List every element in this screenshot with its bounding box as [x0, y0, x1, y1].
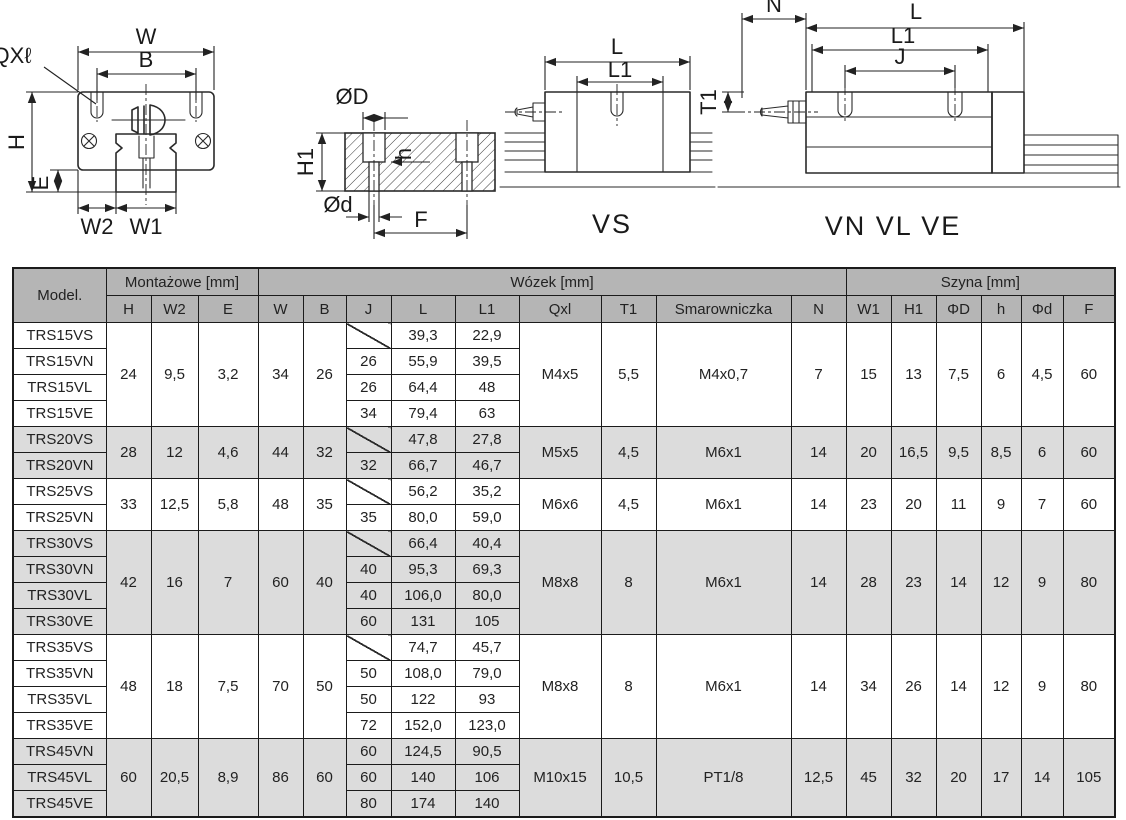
model-cell: TRS35VN [13, 661, 106, 687]
header-col: h [981, 296, 1021, 323]
table-row: TRS45VN6020,58,9866060124,590,5M10x1510,… [13, 739, 1115, 765]
j-cell: 72 [346, 713, 391, 739]
shared-cell-t1: 8 [601, 635, 656, 739]
shared-cell-h: 28 [106, 427, 151, 479]
model-cell: TRS30VL [13, 583, 106, 609]
j-cell [346, 323, 391, 349]
j-cell: 40 [346, 557, 391, 583]
shared-cell-smarowniczka: M6x1 [656, 635, 791, 739]
shared-cell-t1: 4,5 [601, 427, 656, 479]
table-row: TRS25VS3312,55,8483556,235,2M6x64,5M6x11… [13, 479, 1115, 505]
shared-cell-phid: 7,5 [936, 323, 981, 427]
header-col: W2 [151, 296, 198, 323]
shared-cell-h: 17 [981, 739, 1021, 818]
shared-cell-h: 9 [981, 479, 1021, 531]
header-col: L [391, 296, 455, 323]
model-cell: TRS30VE [13, 609, 106, 635]
header-col: H1 [891, 296, 936, 323]
shared-cell-phid: 9 [1021, 531, 1063, 635]
shared-cell-h1: 32 [891, 739, 936, 818]
l-cell: 39,3 [391, 323, 455, 349]
vn-caption: VN VL VE [825, 211, 962, 241]
l1-cell: 48 [455, 375, 519, 401]
l-cell: 66,4 [391, 531, 455, 557]
dim-label-e: E [28, 176, 53, 191]
dim-label-qxl: QXℓ [0, 43, 32, 68]
l-cell: 140 [391, 765, 455, 791]
shared-cell-e: 7 [198, 531, 258, 635]
shared-cell-qxl: M6x6 [519, 479, 601, 531]
header-col: H [106, 296, 151, 323]
shared-cell-b: 32 [303, 427, 346, 479]
technical-drawings: W B QXℓ H E [0, 0, 1126, 254]
l-cell: 56,2 [391, 479, 455, 505]
shared-cell-h: 24 [106, 323, 151, 427]
shared-cell-h: 48 [106, 635, 151, 739]
j-cell [346, 479, 391, 505]
shared-cell-f: 105 [1063, 739, 1115, 818]
l1-cell: 79,0 [455, 661, 519, 687]
l-cell: 174 [391, 791, 455, 818]
l1-cell: 63 [455, 401, 519, 427]
dim-label-w: W [136, 24, 157, 49]
dim-label-f: F [414, 207, 427, 232]
shared-cell-h1: 26 [891, 635, 936, 739]
shared-cell-w: 60 [258, 531, 303, 635]
header-col: F [1063, 296, 1115, 323]
model-cell: TRS45VN [13, 739, 106, 765]
shared-cell-n: 7 [791, 323, 846, 427]
j-cell: 80 [346, 791, 391, 818]
shared-cell-t1: 4,5 [601, 479, 656, 531]
shared-cell-qxl: M8x8 [519, 635, 601, 739]
shared-cell-e: 7,5 [198, 635, 258, 739]
dim-label-w2: W2 [81, 214, 114, 239]
header-col: W [258, 296, 303, 323]
shared-cell-f: 60 [1063, 323, 1115, 427]
shared-cell-n: 14 [791, 635, 846, 739]
shared-cell-n: 12,5 [791, 739, 846, 818]
j-cell: 32 [346, 453, 391, 479]
shared-cell-w2: 12 [151, 427, 198, 479]
shared-cell-t1: 8 [601, 531, 656, 635]
shared-cell-smarowniczka: PT1/8 [656, 739, 791, 818]
header-group: Szyna [mm] [846, 268, 1115, 296]
model-cell: TRS35VE [13, 713, 106, 739]
shared-cell-phid: 14 [936, 635, 981, 739]
shared-cell-w1: 15 [846, 323, 891, 427]
shared-cell-w1: 23 [846, 479, 891, 531]
l-cell: 106,0 [391, 583, 455, 609]
shared-cell-phid: 9,5 [936, 427, 981, 479]
shared-cell-f: 60 [1063, 479, 1115, 531]
dim-label-vn-l: L [910, 0, 922, 24]
shared-cell-n: 14 [791, 479, 846, 531]
header-col: Smarowniczka [656, 296, 791, 323]
header-col: L1 [455, 296, 519, 323]
l1-cell: 39,5 [455, 349, 519, 375]
l1-cell: 80,0 [455, 583, 519, 609]
shared-cell-phid: 20 [936, 739, 981, 818]
shared-cell-h: 12 [981, 635, 1021, 739]
model-cell: TRS25VN [13, 505, 106, 531]
shared-cell-w1: 34 [846, 635, 891, 739]
shared-cell-h1: 23 [891, 531, 936, 635]
l-cell: 131 [391, 609, 455, 635]
model-cell: TRS25VS [13, 479, 106, 505]
model-cell: TRS20VN [13, 453, 106, 479]
l-cell: 66,7 [391, 453, 455, 479]
l1-cell: 46,7 [455, 453, 519, 479]
dim-label-h1: H1 [293, 148, 318, 176]
shared-cell-f: 80 [1063, 635, 1115, 739]
shared-cell-w: 44 [258, 427, 303, 479]
l1-cell: 22,9 [455, 323, 519, 349]
j-cell: 60 [346, 765, 391, 791]
header-col: W1 [846, 296, 891, 323]
l1-cell: 27,8 [455, 427, 519, 453]
j-cell: 26 [346, 375, 391, 401]
shared-cell-phid: 9 [1021, 635, 1063, 739]
shared-cell-smarowniczka: M6x1 [656, 479, 791, 531]
shared-cell-e: 3,2 [198, 323, 258, 427]
header-col: T1 [601, 296, 656, 323]
l1-cell: 40,4 [455, 531, 519, 557]
j-cell: 34 [346, 401, 391, 427]
dim-label-vs-l1: L1 [608, 57, 632, 82]
j-cell: 60 [346, 609, 391, 635]
l-cell: 80,0 [391, 505, 455, 531]
linear-guide-drawing: W B QXℓ H E [0, 0, 1126, 254]
model-cell: TRS15VN [13, 349, 106, 375]
j-cell: 50 [346, 687, 391, 713]
shared-cell-e: 8,9 [198, 739, 258, 818]
shared-cell-phid: 7 [1021, 479, 1063, 531]
model-cell: TRS15VE [13, 401, 106, 427]
model-cell: TRS15VL [13, 375, 106, 401]
shared-cell-b: 35 [303, 479, 346, 531]
dim-label-phid-big: ØD [336, 84, 369, 109]
l1-cell: 45,7 [455, 635, 519, 661]
header-col: E [198, 296, 258, 323]
shared-cell-h: 8,5 [981, 427, 1021, 479]
shared-cell-w1: 45 [846, 739, 891, 818]
table-row: TRS35VS48187,5705074,745,7M8x88M6x114342… [13, 635, 1115, 661]
header-model: Model. [13, 268, 106, 323]
shared-cell-f: 60 [1063, 427, 1115, 479]
shared-cell-w1: 28 [846, 531, 891, 635]
vs-caption: VS [592, 209, 632, 239]
model-cell: TRS15VS [13, 323, 106, 349]
l-cell: 95,3 [391, 557, 455, 583]
l1-cell: 90,5 [455, 739, 519, 765]
shared-cell-f: 80 [1063, 531, 1115, 635]
shared-cell-w2: 12,5 [151, 479, 198, 531]
l1-cell: 93 [455, 687, 519, 713]
shared-cell-phid: 4,5 [1021, 323, 1063, 427]
rail-section-view: ØD H1 h Ød F [293, 84, 495, 239]
shared-cell-h: 33 [106, 479, 151, 531]
shared-cell-w: 48 [258, 479, 303, 531]
dim-label-n: N [766, 0, 782, 17]
shared-cell-qxl: M4x5 [519, 323, 601, 427]
table-row: TRS20VS28124,6443247,827,8M5x54,5M6x1142… [13, 427, 1115, 453]
front-view: W B QXℓ H E [0, 24, 214, 239]
shared-cell-t1: 10,5 [601, 739, 656, 818]
shared-cell-qxl: M8x8 [519, 531, 601, 635]
l-cell: 122 [391, 687, 455, 713]
shared-cell-qxl: M5x5 [519, 427, 601, 479]
header-col: N [791, 296, 846, 323]
dim-label-phid-small: Ød [323, 192, 352, 217]
shared-cell-phid: 6 [1021, 427, 1063, 479]
header-col: Qxl [519, 296, 601, 323]
shared-cell-b: 40 [303, 531, 346, 635]
dim-label-vs-l: L [611, 34, 623, 59]
model-cell: TRS35VL [13, 687, 106, 713]
dim-label-w1: W1 [130, 214, 163, 239]
model-cell: TRS45VE [13, 791, 106, 818]
shared-cell-w: 34 [258, 323, 303, 427]
vs-view: L L1 VS [500, 34, 715, 239]
l-cell: 79,4 [391, 401, 455, 427]
header-col: ΦD [936, 296, 981, 323]
shared-cell-smarowniczka: M6x1 [656, 531, 791, 635]
l1-cell: 123,0 [455, 713, 519, 739]
shared-cell-h: 6 [981, 323, 1021, 427]
shared-cell-h: 12 [981, 531, 1021, 635]
l-cell: 124,5 [391, 739, 455, 765]
l1-cell: 105 [455, 609, 519, 635]
header-col: J [346, 296, 391, 323]
shared-cell-t1: 5,5 [601, 323, 656, 427]
shared-cell-smarowniczka: M4x0,7 [656, 323, 791, 427]
table-row: TRS15VS249,53,2342639,322,9M4x55,5M4x0,7… [13, 323, 1115, 349]
dim-label-h-small: h [391, 148, 416, 160]
j-cell: 35 [346, 505, 391, 531]
dim-label-t1: T1 [696, 89, 721, 115]
shared-cell-smarowniczka: M6x1 [656, 427, 791, 479]
shared-cell-h: 42 [106, 531, 151, 635]
table-row: TRS30VS42167604066,440,4M8x88M6x11428231… [13, 531, 1115, 557]
l1-cell: 35,2 [455, 479, 519, 505]
model-cell: TRS30VN [13, 557, 106, 583]
shared-cell-w: 70 [258, 635, 303, 739]
header-group: Montażowe [mm] [106, 268, 258, 296]
model-cell: TRS45VL [13, 765, 106, 791]
l1-cell: 106 [455, 765, 519, 791]
l-cell: 47,8 [391, 427, 455, 453]
shared-cell-w: 86 [258, 739, 303, 818]
shared-cell-e: 4,6 [198, 427, 258, 479]
shared-cell-w2: 18 [151, 635, 198, 739]
spec-table: Model.Montażowe [mm]Wózek [mm]Szyna [mm]… [12, 267, 1116, 818]
shared-cell-qxl: M10x15 [519, 739, 601, 818]
vn-vl-ve-view: N L L1 J T1 VN VL VE [696, 0, 1120, 241]
shared-cell-w2: 16 [151, 531, 198, 635]
shared-cell-n: 14 [791, 531, 846, 635]
model-cell: TRS35VS [13, 635, 106, 661]
j-cell: 26 [346, 349, 391, 375]
l-cell: 55,9 [391, 349, 455, 375]
shared-cell-phid: 14 [936, 531, 981, 635]
shared-cell-phid: 11 [936, 479, 981, 531]
header-col: B [303, 296, 346, 323]
j-cell: 40 [346, 583, 391, 609]
shared-cell-h1: 16,5 [891, 427, 936, 479]
l-cell: 152,0 [391, 713, 455, 739]
shared-cell-b: 60 [303, 739, 346, 818]
shared-cell-e: 5,8 [198, 479, 258, 531]
j-cell [346, 531, 391, 557]
dim-label-h: H [4, 134, 29, 150]
j-cell [346, 427, 391, 453]
l-cell: 108,0 [391, 661, 455, 687]
header-group: Wózek [mm] [258, 268, 846, 296]
dim-label-j: J [895, 44, 906, 69]
l-cell: 74,7 [391, 635, 455, 661]
shared-cell-b: 50 [303, 635, 346, 739]
model-cell: TRS20VS [13, 427, 106, 453]
shared-cell-h: 60 [106, 739, 151, 818]
j-cell: 60 [346, 739, 391, 765]
shared-cell-w2: 9,5 [151, 323, 198, 427]
l1-cell: 59,0 [455, 505, 519, 531]
shared-cell-b: 26 [303, 323, 346, 427]
l1-cell: 140 [455, 791, 519, 818]
j-cell: 50 [346, 661, 391, 687]
l-cell: 64,4 [391, 375, 455, 401]
shared-cell-w2: 20,5 [151, 739, 198, 818]
shared-cell-w1: 20 [846, 427, 891, 479]
header-col: Φd [1021, 296, 1063, 323]
l1-cell: 69,3 [455, 557, 519, 583]
j-cell [346, 635, 391, 661]
model-cell: TRS30VS [13, 531, 106, 557]
shared-cell-h1: 20 [891, 479, 936, 531]
dim-label-b: B [139, 47, 154, 72]
shared-cell-phid: 14 [1021, 739, 1063, 818]
shared-cell-h1: 13 [891, 323, 936, 427]
shared-cell-n: 14 [791, 427, 846, 479]
